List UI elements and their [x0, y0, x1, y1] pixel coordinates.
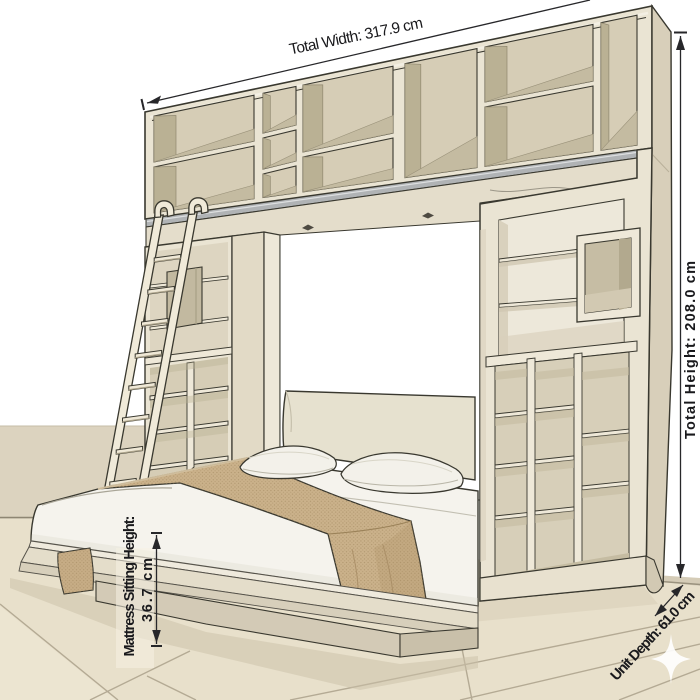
- svg-text:36.7 cm: 36.7 cm: [140, 558, 156, 622]
- svg-text:Mattress Sitting Height:: Mattress Sitting Height:: [122, 516, 138, 657]
- svg-text:Total Height: 208.0 cm: Total Height: 208.0 cm: [683, 261, 699, 439]
